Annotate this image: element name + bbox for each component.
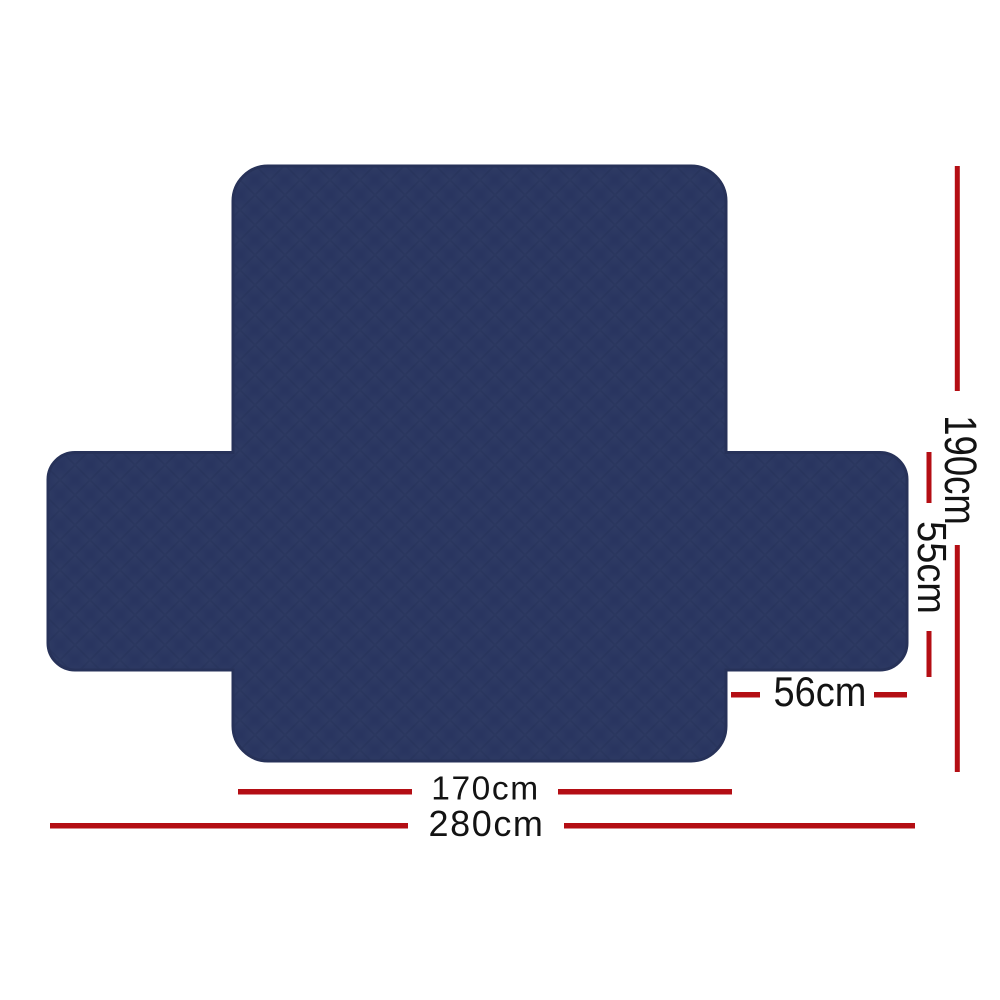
svg-text:280cm: 280cm <box>428 803 544 844</box>
svg-text:170cm: 170cm <box>431 771 540 808</box>
svg-text:55cm: 55cm <box>909 521 955 614</box>
svg-text:190cm: 190cm <box>935 415 986 525</box>
svg-text:56cm: 56cm <box>774 669 867 715</box>
